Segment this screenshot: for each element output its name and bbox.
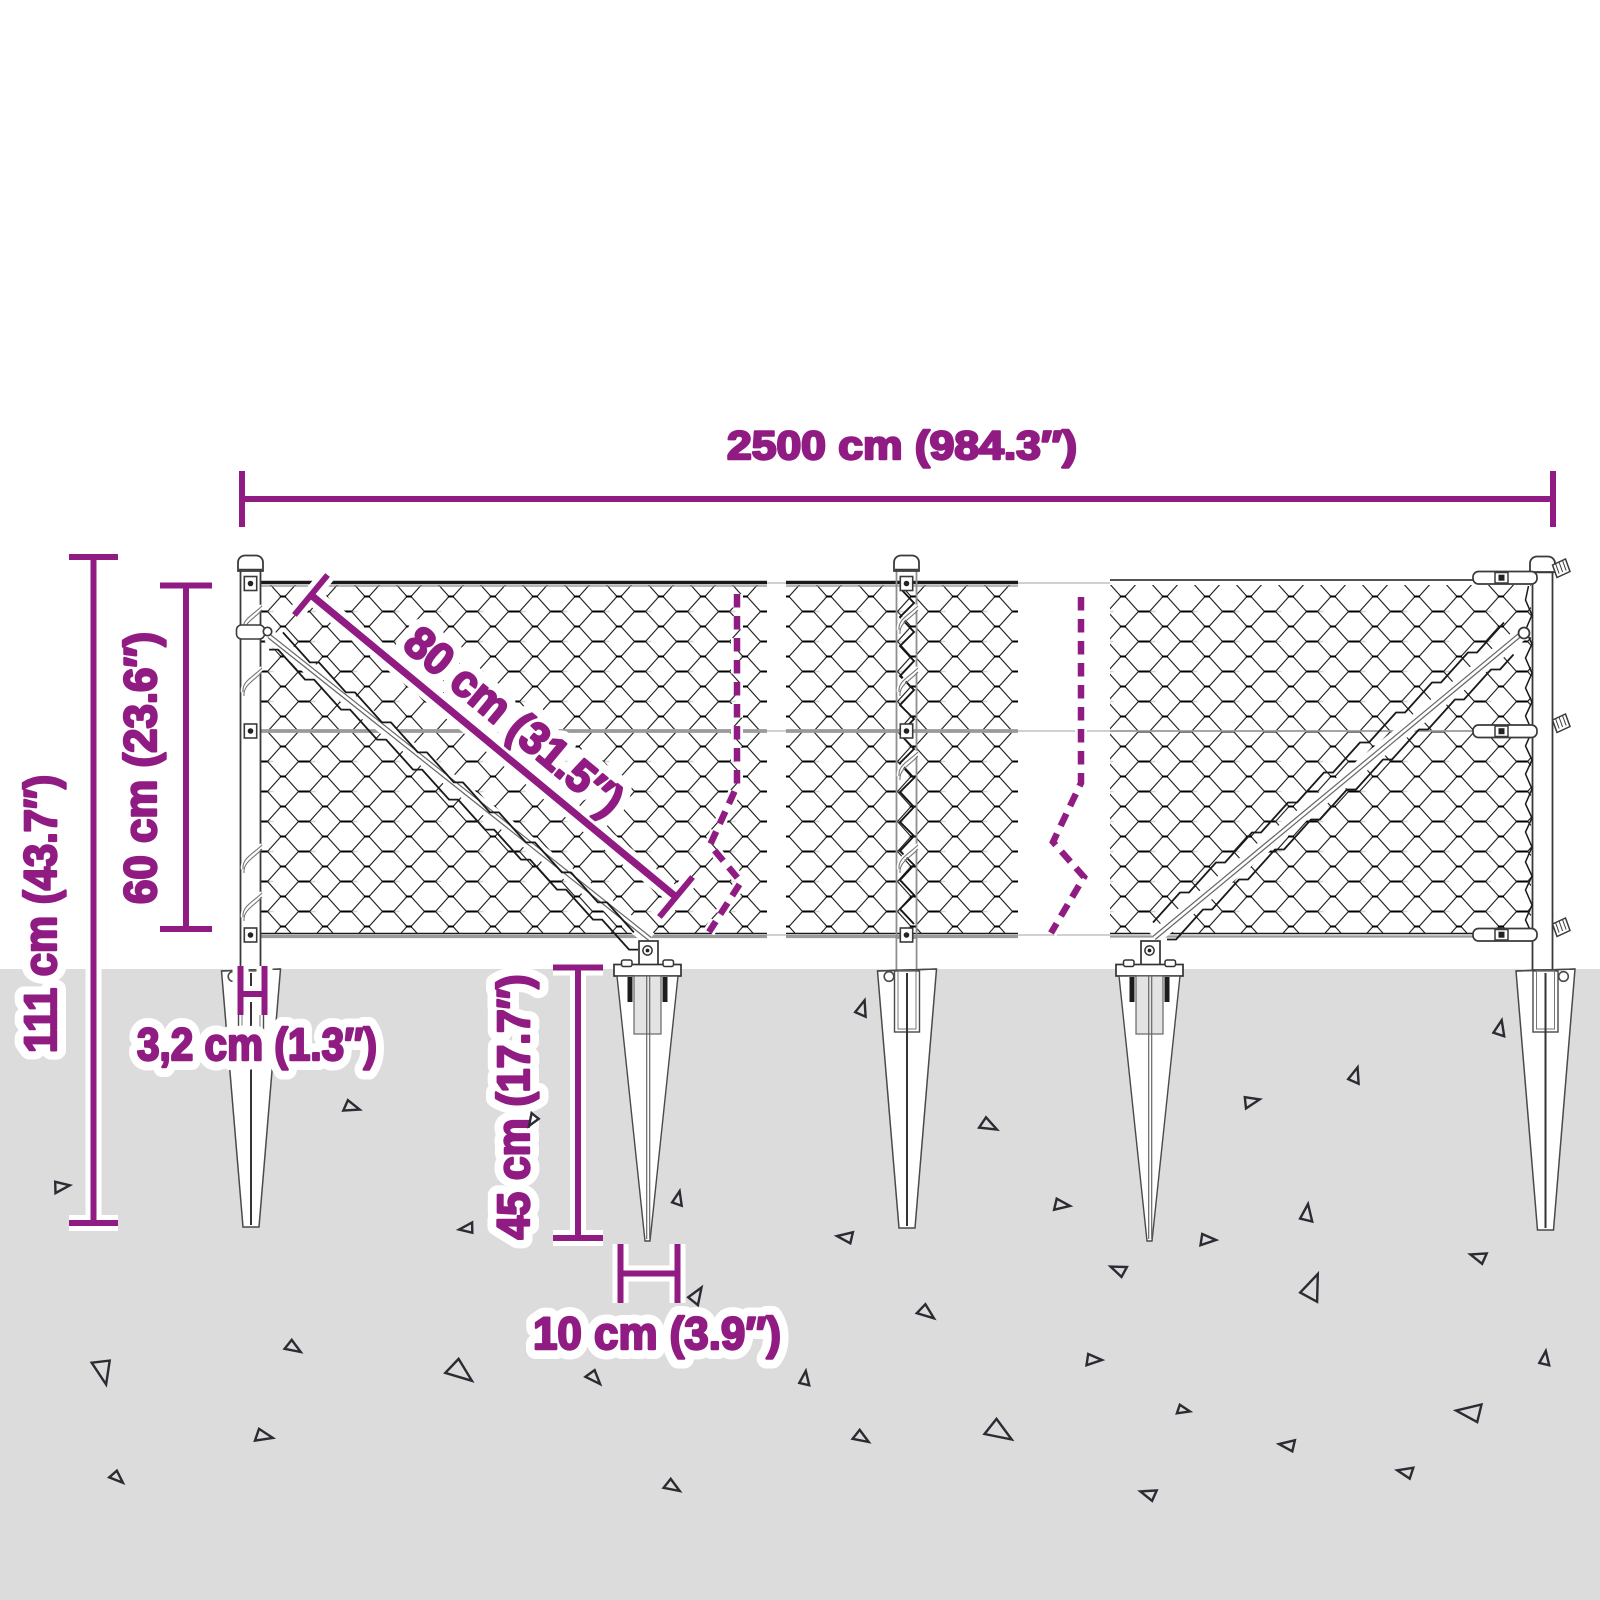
svg-text:3,2 cm (1.3″): 3,2 cm (1.3″) xyxy=(137,1019,377,1070)
svg-text:111 cm (43.7″): 111 cm (43.7″) xyxy=(15,775,66,1053)
svg-text:45 cm (17.7″): 45 cm (17.7″) xyxy=(488,975,539,1240)
svg-text:2500 cm (984.3″): 2500 cm (984.3″) xyxy=(727,424,1077,468)
svg-text:60 cm (23.6″): 60 cm (23.6″) xyxy=(115,632,166,904)
svg-text:10 cm (3.9″): 10 cm (3.9″) xyxy=(533,1308,781,1359)
